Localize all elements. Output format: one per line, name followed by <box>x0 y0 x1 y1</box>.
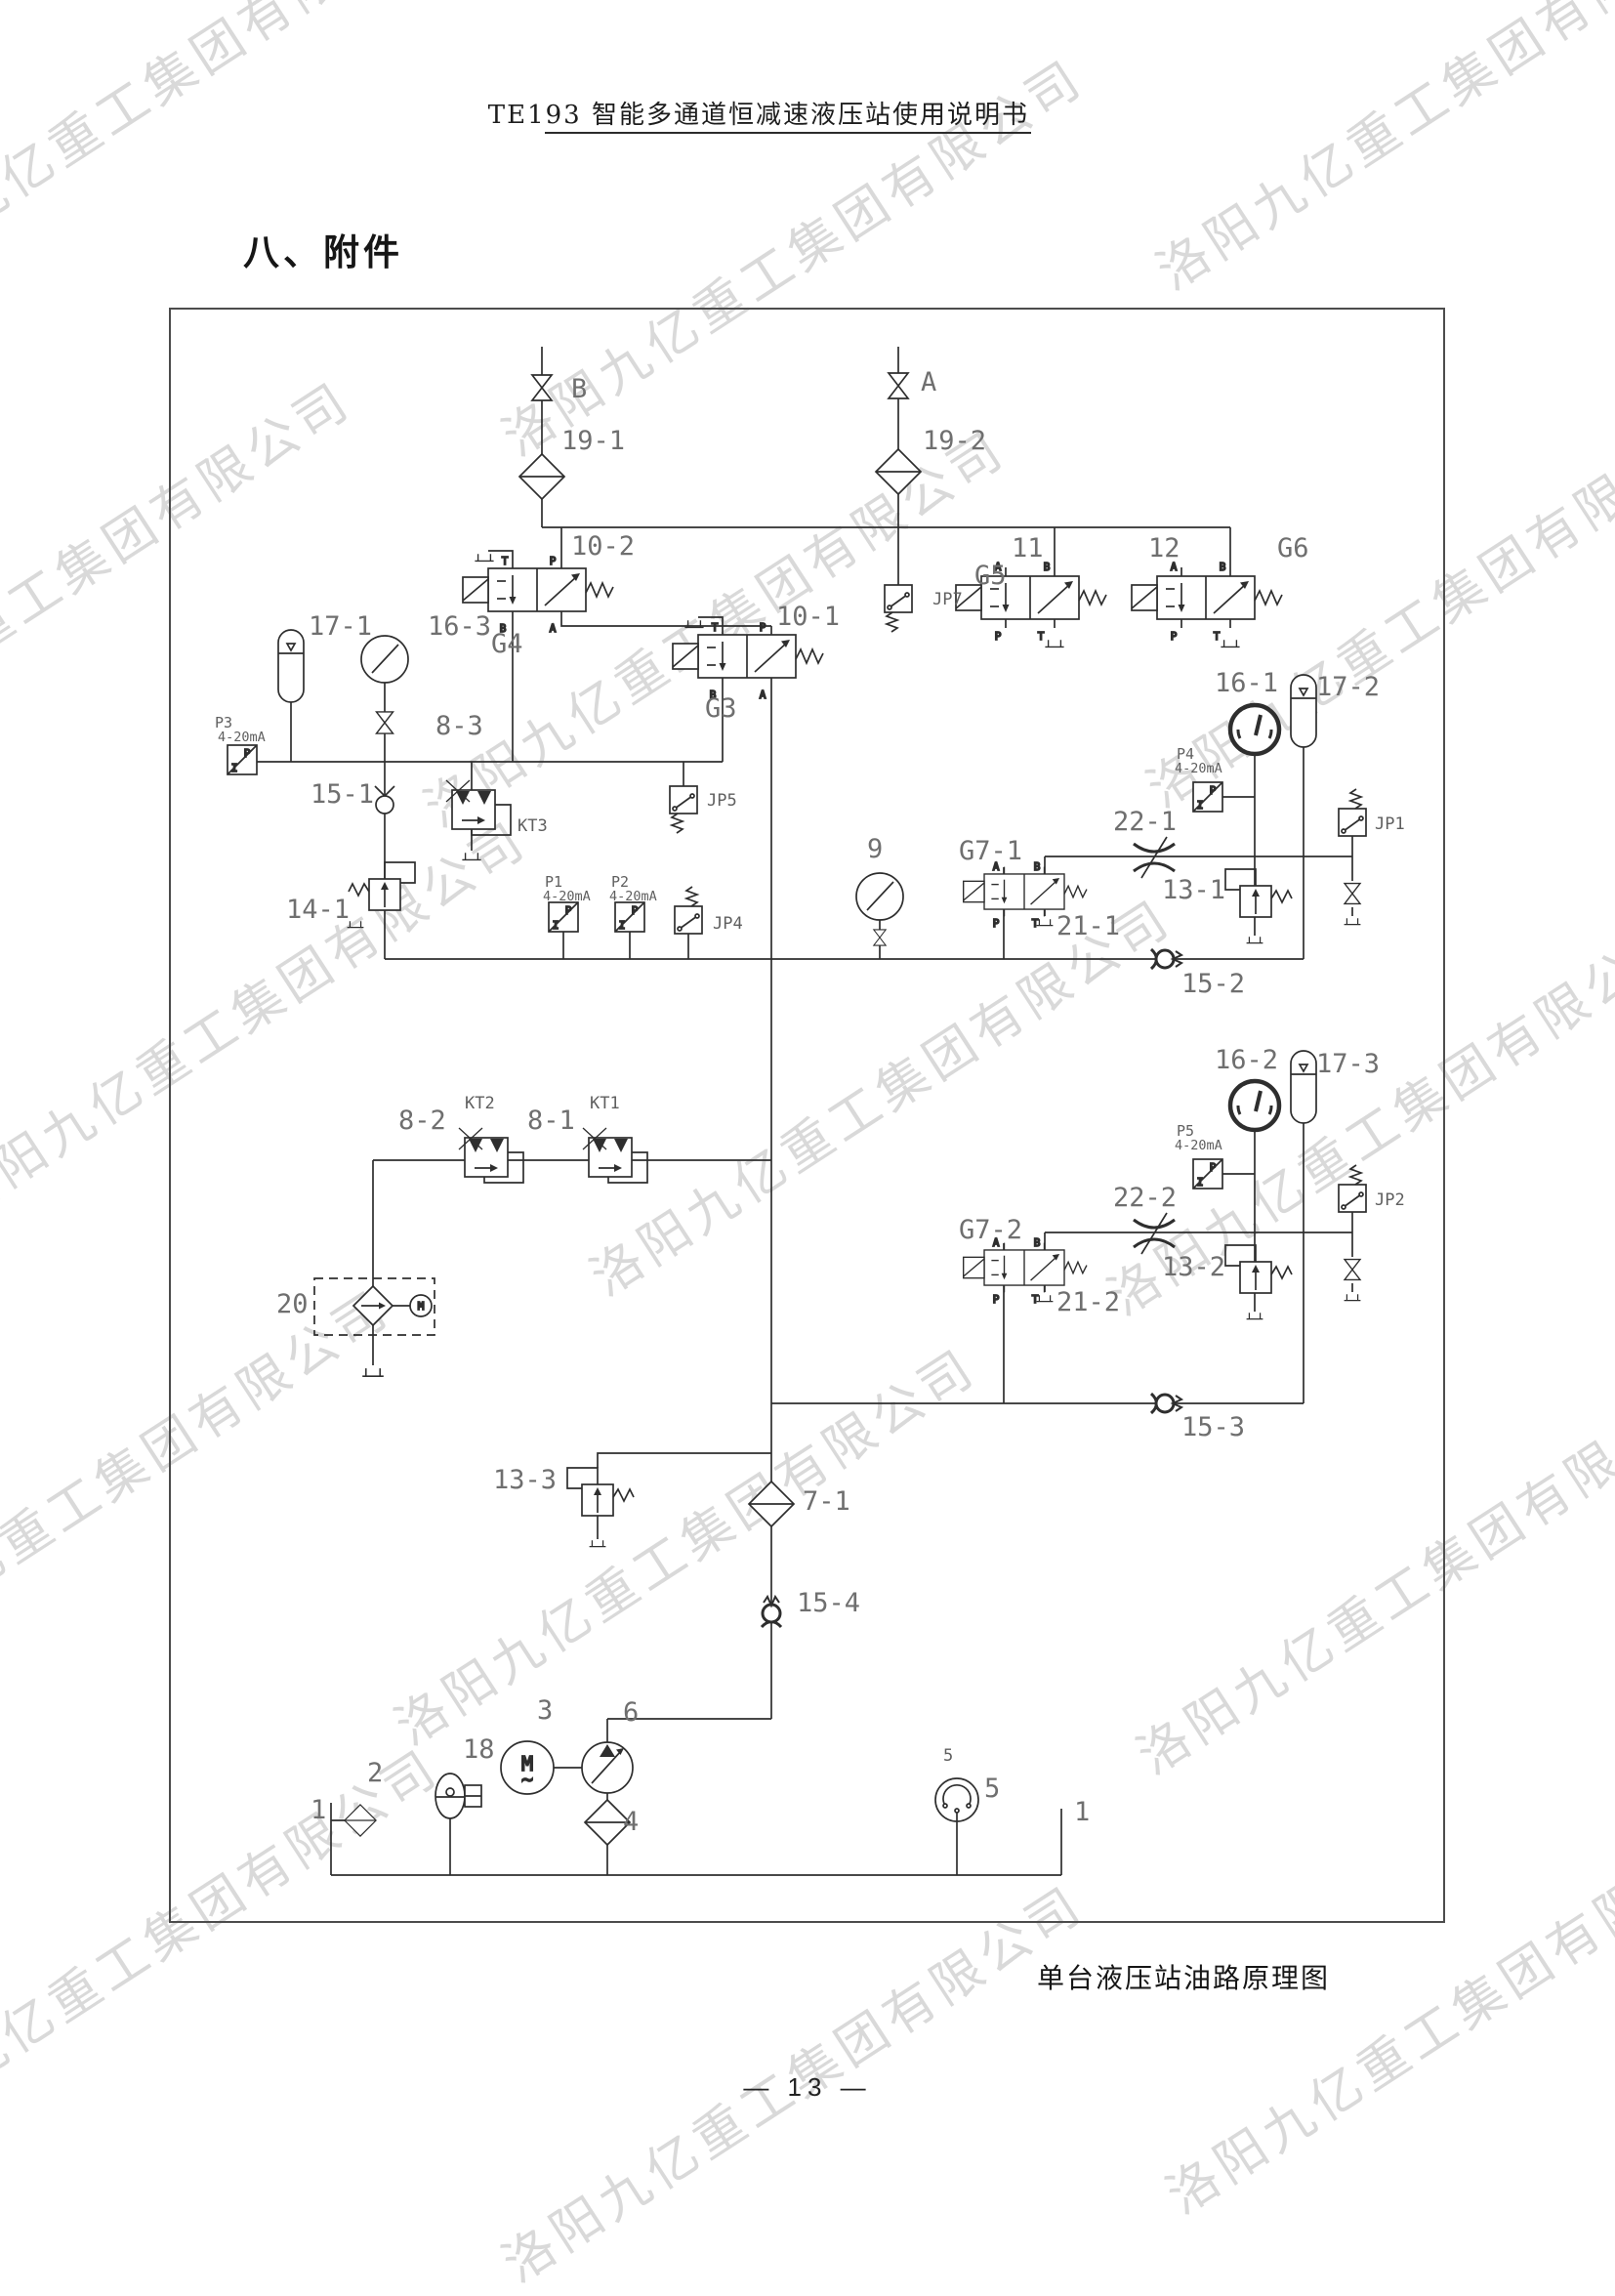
svg-text:P: P <box>550 555 557 567</box>
label-jp5: JP5 <box>707 793 737 810</box>
label-p3: P3 <box>215 716 232 731</box>
label-19-1: 19-1 <box>561 428 625 454</box>
label-13-3: 13-3 <box>493 1467 557 1493</box>
label-jp1: JP1 <box>1375 816 1405 833</box>
cartridge-valve-kt1 <box>583 1128 647 1183</box>
label-g3: G3 <box>705 695 737 722</box>
circulation-pump-20: M <box>314 1278 435 1376</box>
gauge-16-2 <box>1230 1081 1279 1130</box>
label-11: 11 <box>1012 535 1044 562</box>
label-jp2: JP2 <box>1375 1192 1405 1209</box>
label-17-1: 17-1 <box>309 613 372 640</box>
motor-3 <box>501 1741 554 1794</box>
valve-13-3 <box>567 1468 634 1547</box>
label-20: 20 <box>276 1291 309 1317</box>
valve-13-2 <box>1225 1245 1292 1319</box>
label-10-1: 10-1 <box>776 604 840 630</box>
main-pressure-line <box>607 687 771 1742</box>
manual-page: { "header": { "title": "TE193 智能多通道恒减速液压… <box>0 0 1615 2192</box>
valve-13-1 <box>1225 869 1292 943</box>
svg-text:P: P <box>995 630 1002 643</box>
label-16-1: 16-1 <box>1215 670 1278 696</box>
label-p4-range: 4-20mA <box>1175 763 1222 776</box>
diagram-caption: 单台液压站油路原理图 <box>1037 1957 1330 1996</box>
gauge-9 <box>856 873 903 945</box>
label-22-1: 22-1 <box>1113 809 1177 835</box>
solenoid-valve-10-1: T P B A <box>673 620 823 701</box>
cartridge-valve-kt2 <box>459 1128 523 1183</box>
label-13-2: 13-2 <box>1162 1254 1225 1280</box>
svg-text:T: T <box>1032 1293 1039 1306</box>
label-p2-range: 4-20mA <box>609 891 657 904</box>
label-22-2: 22-2 <box>1113 1185 1177 1211</box>
svg-text:A: A <box>550 622 557 635</box>
label-kt1: KT1 <box>590 1096 620 1112</box>
temp-gauge-5 <box>935 1778 978 1821</box>
cartridge-valve-kt3 <box>446 780 511 859</box>
orifice-22-2 <box>1134 1213 1175 1254</box>
label-15-3: 15-3 <box>1181 1414 1245 1440</box>
label-15-1: 15-1 <box>311 781 374 808</box>
pressure-switch-jp4 <box>675 887 702 934</box>
label-8-2: 8-2 <box>398 1107 446 1134</box>
label-3: 3 <box>537 1697 553 1724</box>
label-18: 18 <box>463 1736 495 1763</box>
pressure-switch-jp5 <box>670 786 697 833</box>
label-4: 4 <box>623 1809 639 1835</box>
label-p1: P1 <box>545 875 562 890</box>
transmitter-p3 <box>228 745 257 774</box>
transmitter-p5 <box>1193 1159 1222 1189</box>
label-13-1: 13-1 <box>1162 877 1225 903</box>
label-p4: P4 <box>1177 747 1194 762</box>
orifice-22-1 <box>1134 837 1175 878</box>
svg-text:A: A <box>760 689 766 701</box>
solenoid-valve-12: A B P T <box>1132 561 1282 647</box>
label-10-2: 10-2 <box>571 533 635 560</box>
label-kt3: KT3 <box>518 818 548 835</box>
svg-text:P: P <box>993 917 1000 930</box>
label-5-small: 5 <box>943 1748 953 1765</box>
svg-text:P: P <box>1171 630 1178 643</box>
svg-text:P: P <box>993 1293 1000 1306</box>
accumulator-17-3 <box>1291 1051 1316 1123</box>
label-p5-range: 4-20mA <box>1175 1140 1222 1153</box>
label-17-3: 17-3 <box>1316 1051 1380 1077</box>
transmitter-p2 <box>615 902 644 932</box>
gauge-16-1 <box>1230 705 1279 754</box>
svg-text:B: B <box>1034 860 1041 873</box>
svg-text:T: T <box>1038 630 1045 643</box>
hydraulic-schematic: P I M ~ <box>0 0 1615 2192</box>
svg-text:T: T <box>1032 917 1039 930</box>
filter-19-2 <box>876 449 921 494</box>
label-16-3: 16-3 <box>428 613 491 640</box>
transmitter-p4 <box>1193 782 1222 812</box>
svg-text:M: M <box>418 1300 425 1313</box>
label-p5: P5 <box>1177 1124 1194 1139</box>
transmitter-p1 <box>549 902 578 932</box>
label-15-4: 15-4 <box>797 1590 860 1616</box>
label-p2: P2 <box>611 875 629 890</box>
label-jp4: JP4 <box>713 916 743 933</box>
svg-text:B: B <box>1044 561 1051 573</box>
accumulator-17-2 <box>1291 675 1316 747</box>
label-12: 12 <box>1148 535 1180 562</box>
label-8-3: 8-3 <box>435 713 483 739</box>
level-gauge-18 <box>435 1774 481 1818</box>
page-number: — 13 — <box>0 2072 1615 2103</box>
label-port-b: B <box>571 376 587 402</box>
label-jp7: JP7 <box>932 592 963 608</box>
label-g7-1: G7-1 <box>959 838 1022 864</box>
pump-6 <box>582 1742 633 1793</box>
label-14-1: 14-1 <box>286 897 350 923</box>
label-7-1: 7-1 <box>803 1488 850 1515</box>
label-p3-range: 4-20mA <box>218 731 266 745</box>
label-kt2: KT2 <box>465 1096 495 1112</box>
label-21-2: 21-2 <box>1056 1289 1120 1315</box>
label-5: 5 <box>984 1775 1000 1802</box>
svg-text:T: T <box>712 621 719 634</box>
label-17-2: 17-2 <box>1316 674 1380 700</box>
label-1-right: 1 <box>1074 1799 1090 1825</box>
filter-7-1 <box>749 1482 794 1526</box>
label-1-left: 1 <box>311 1797 326 1823</box>
label-6: 6 <box>623 1699 639 1726</box>
label-g6: G6 <box>1277 535 1309 562</box>
shutoff-valve-b <box>532 375 552 400</box>
label-g4: G4 <box>491 631 523 657</box>
label-15-2: 15-2 <box>1181 971 1245 997</box>
label-16-2: 16-2 <box>1215 1047 1278 1073</box>
air-breather-2 <box>345 1805 376 1836</box>
label-g5: G5 <box>974 563 1007 589</box>
svg-text:T: T <box>502 555 509 567</box>
relief-valve-14-1 <box>348 862 415 928</box>
label-2: 2 <box>367 1760 383 1786</box>
label-port-a: A <box>921 369 936 396</box>
svg-text:P: P <box>760 621 766 634</box>
label-p1-range: 4-20mA <box>543 891 591 904</box>
label-19-2: 19-2 <box>923 428 986 454</box>
label-9: 9 <box>867 836 883 862</box>
filter-19-1 <box>519 454 564 499</box>
svg-text:B: B <box>1034 1236 1041 1249</box>
accumulator-17-1 <box>278 630 304 702</box>
label-21-1: 21-1 <box>1056 913 1120 939</box>
shutoff-valve-a <box>889 373 908 398</box>
label-8-1: 8-1 <box>527 1107 575 1134</box>
label-g7-2: G7-2 <box>959 1217 1022 1243</box>
pressure-switch-jp7 <box>885 585 912 632</box>
svg-text:T: T <box>1214 630 1221 643</box>
svg-text:B: B <box>1220 561 1226 573</box>
